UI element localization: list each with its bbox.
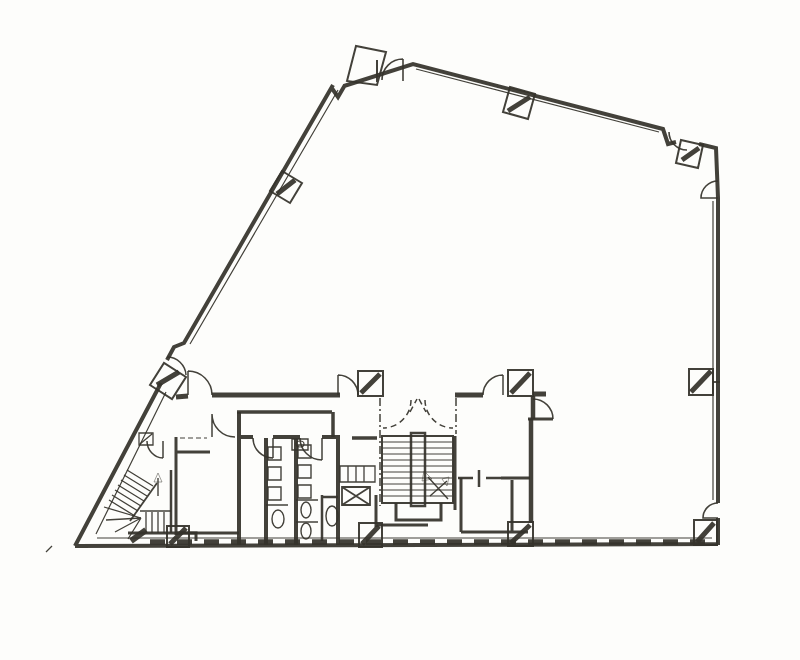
right-room-door: [533, 399, 553, 419]
lobby-right-wall: [531, 396, 533, 523]
duct-shaft: [342, 487, 370, 505]
main-stair-core: [411, 433, 425, 506]
service-threshold: [458, 470, 501, 487]
corridor-walls: [237, 412, 377, 438]
columns-rotated: [150, 87, 703, 399]
wc-bowl-3: [301, 523, 311, 539]
fire-stair-door: [147, 441, 163, 458]
stray-scan-mark: [46, 546, 52, 552]
toilet-fixtures: [266, 439, 318, 522]
sink-counter: [340, 466, 375, 482]
inner-wall-lines: [96, 69, 713, 538]
fire-stair-door-box: [139, 433, 153, 445]
store-room-walls: [176, 437, 239, 535]
main-stair-treads: [383, 442, 452, 496]
service-room: [461, 478, 530, 532]
scanned-floor-plan-page: [0, 0, 800, 660]
accessible-wc-walls: [322, 495, 338, 541]
floor-plan-canvas: [0, 0, 800, 660]
right-wall-door-bottom: [703, 503, 718, 518]
wc-bowl-2: [301, 502, 311, 518]
wc-bowl-1: [272, 510, 284, 528]
core-door-swings: [188, 371, 503, 395]
toilet-walls: [239, 412, 340, 545]
lobby-dashed-doors: [383, 399, 453, 428]
store-room-door: [212, 414, 235, 437]
stair-lower-landing: [376, 436, 455, 527]
